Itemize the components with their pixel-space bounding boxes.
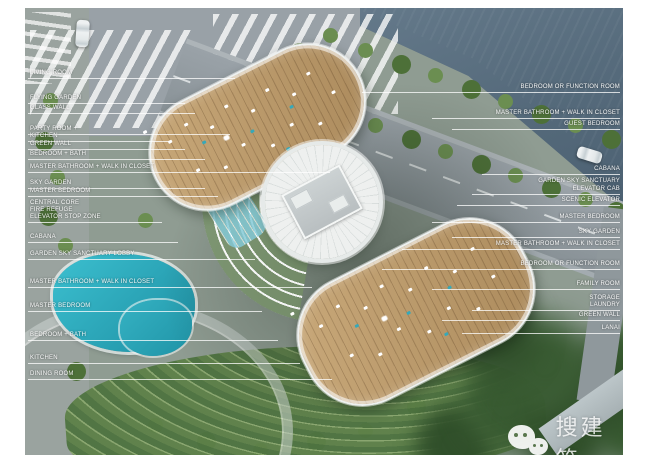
- watermark: 搜建筑: [508, 410, 623, 455]
- central-roof-core: [265, 145, 379, 259]
- roof-equipment-block: [328, 194, 350, 214]
- wechat-bubble-small: [529, 438, 548, 455]
- aerial-rendering: 搜建筑: [25, 8, 623, 455]
- page: 搜建筑 LIVING ROOMFLYING GARDENGLASS WALLPA…: [0, 0, 650, 469]
- white-car: [75, 20, 90, 48]
- wechat-icon: [508, 423, 548, 455]
- tree-mass-bottom-right: [25, 8, 75, 58]
- roof-equipment: [281, 164, 363, 239]
- watermark-text: 搜建筑: [556, 410, 623, 455]
- roof-equipment-block: [289, 189, 313, 211]
